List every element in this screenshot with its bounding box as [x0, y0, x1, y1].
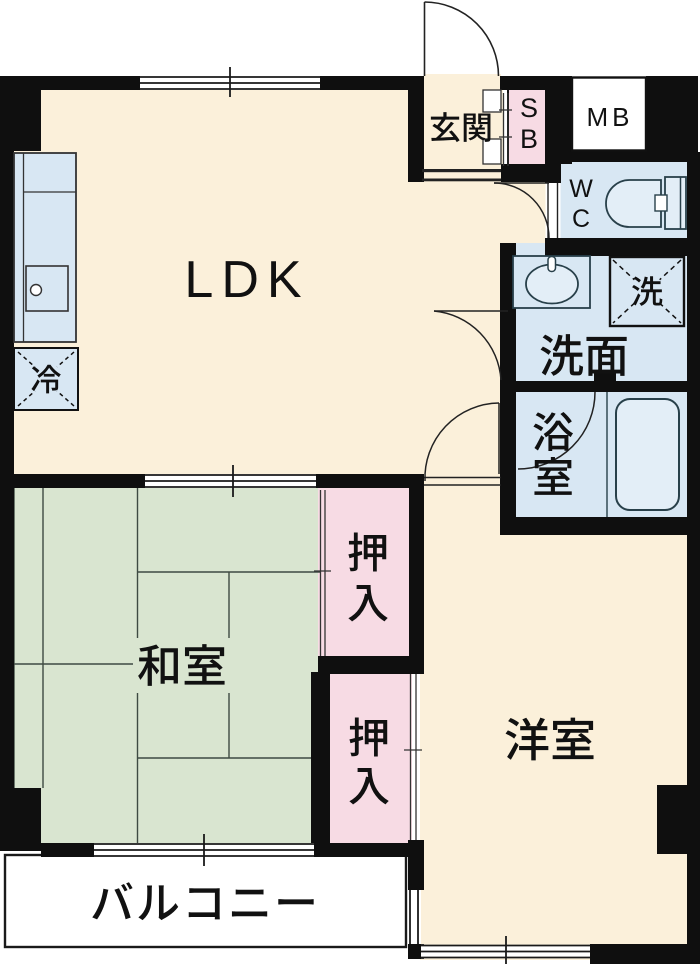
svg-text:LDK: LDK: [184, 251, 309, 309]
svg-text:C: C: [572, 205, 590, 233]
svg-text:MB: MB: [587, 102, 634, 132]
svg-text:B: B: [520, 124, 538, 154]
svg-text:S: S: [520, 93, 538, 123]
svg-text:W: W: [569, 175, 593, 203]
